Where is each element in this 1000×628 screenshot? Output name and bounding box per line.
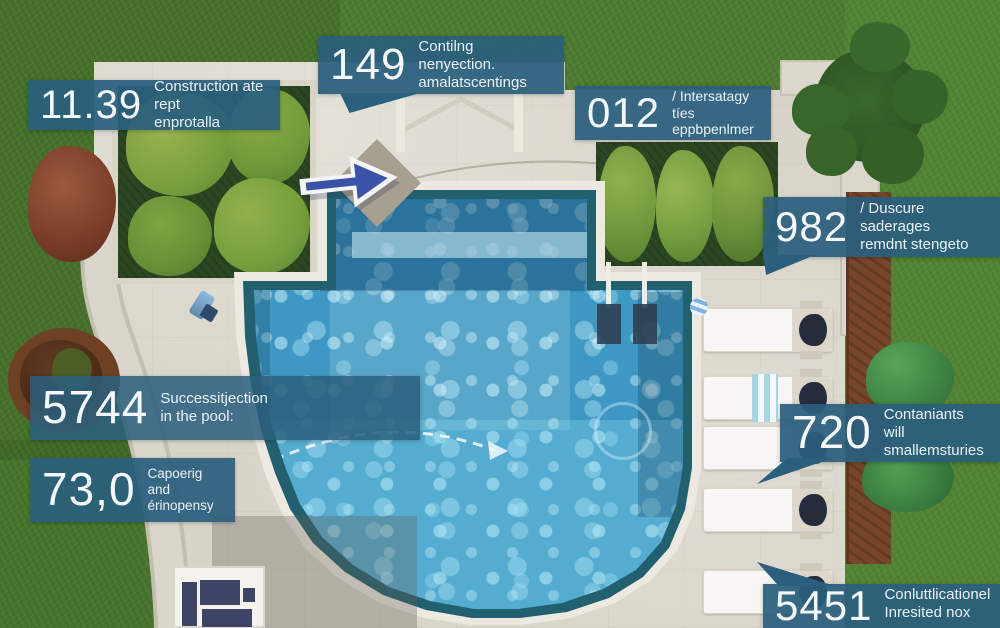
pool-ladder-icon bbox=[632, 262, 662, 348]
callout-label: Capoerig andérinopensy bbox=[148, 466, 223, 514]
pergola-post bbox=[396, 94, 405, 152]
callout-label: Contaniants willsmallemsturies bbox=[884, 406, 988, 459]
callout-number: 11.39 bbox=[40, 86, 142, 124]
equipment-building bbox=[173, 566, 265, 628]
direction-arrow-icon bbox=[295, 145, 405, 222]
building-panel bbox=[202, 609, 252, 627]
lounger-pillow bbox=[799, 314, 827, 346]
hedge-bush bbox=[656, 150, 714, 262]
callout-label: ConluttlicationelInresited nox bbox=[884, 586, 990, 621]
callout-5744: 5744 Successitjectionin the pool: bbox=[30, 376, 420, 440]
pergola-post bbox=[514, 94, 523, 152]
callout-730: 73,0 Capoerig andérinopensy bbox=[30, 458, 235, 522]
lap-lane-highlight bbox=[352, 232, 588, 258]
callout-label: Construction ate reptenprotalla bbox=[154, 78, 268, 131]
callout-label: / Intersatagy tíeseppbpenlmer bbox=[672, 88, 759, 138]
pool-ladder-icon bbox=[596, 262, 626, 348]
callout-number: 012 bbox=[587, 93, 660, 133]
water-swirl-circle bbox=[594, 402, 652, 460]
callout-number: 73,0 bbox=[42, 468, 136, 512]
callout-label: Successitjectionin the pool: bbox=[160, 390, 268, 425]
planter-bush bbox=[214, 178, 310, 274]
lounger-towel bbox=[752, 374, 778, 422]
scene-root: 11.39 Construction ate reptenprotalla 14… bbox=[0, 0, 1000, 628]
callout-number: 720 bbox=[792, 411, 872, 455]
lounger-pillow bbox=[799, 494, 827, 526]
callout-number: 5744 bbox=[42, 386, 148, 430]
callout-720: 720 Contaniants willsmallemsturies bbox=[780, 404, 1000, 462]
callout-1139: 11.39 Construction ate reptenprotalla bbox=[28, 80, 280, 130]
planter-bush bbox=[128, 196, 212, 276]
callout-number: 982 bbox=[775, 207, 848, 247]
red-shrub bbox=[28, 146, 116, 262]
pergola-roof-outline bbox=[400, 99, 522, 132]
lounger bbox=[703, 308, 833, 352]
building-panel bbox=[243, 588, 255, 602]
callout-149: 149 Contilng nenyection.amalatscentings bbox=[318, 36, 564, 94]
callout-number: 5451 bbox=[775, 586, 872, 626]
building-panel bbox=[200, 580, 240, 605]
tree-canopy bbox=[792, 22, 952, 192]
callout-label: Contilng nenyection.amalatscentings bbox=[418, 38, 552, 91]
callout-982: 982 / Duscure saderagesremdnt stengeto bbox=[763, 197, 1000, 257]
callout-label: / Duscure saderagesremdnt stengeto bbox=[860, 200, 988, 253]
hedge-bush bbox=[598, 146, 656, 262]
callout-number: 149 bbox=[330, 44, 406, 86]
building-panel bbox=[182, 582, 197, 626]
callout-012: 012 / Intersatagy tíeseppbpenlmer bbox=[575, 86, 771, 140]
callout-5451: 5451 ConluttlicationelInresited nox bbox=[763, 584, 1000, 628]
lounger bbox=[703, 488, 833, 532]
